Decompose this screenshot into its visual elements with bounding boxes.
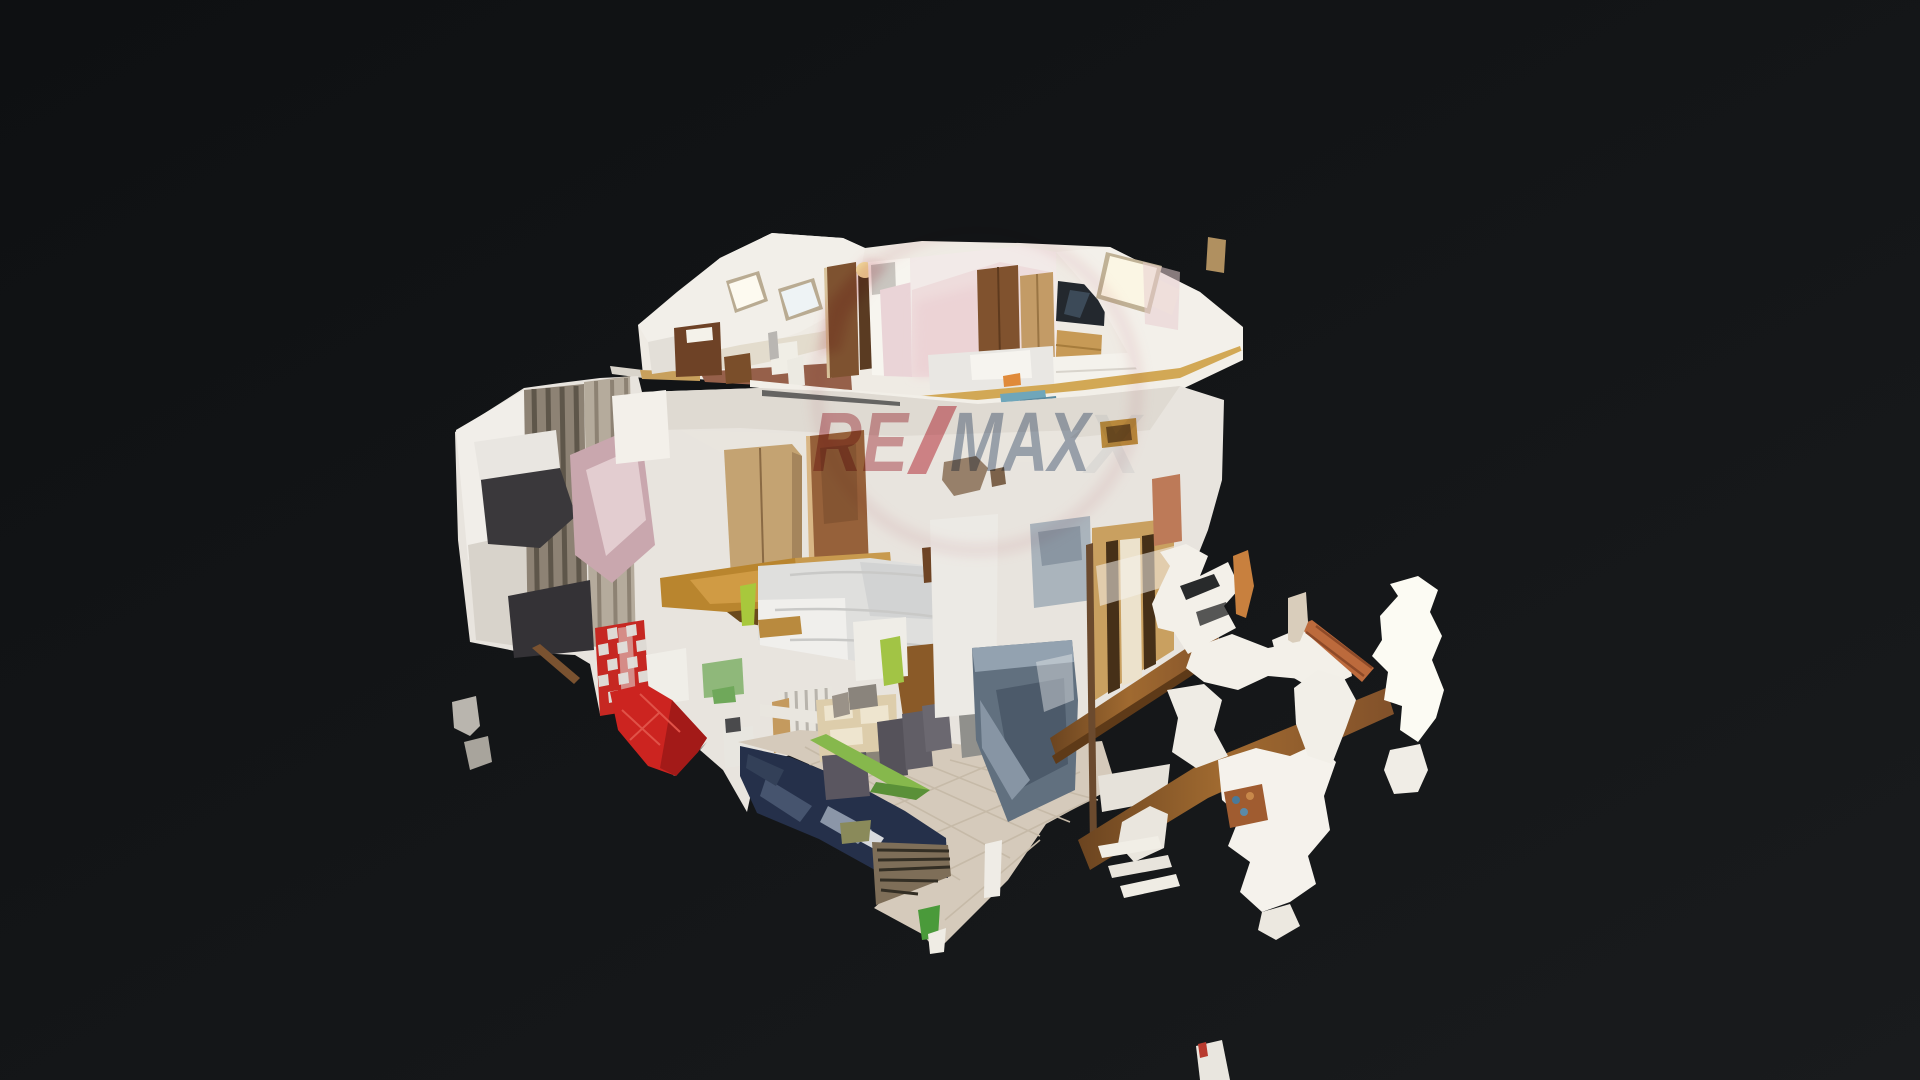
svg-text:X: X <box>1082 397 1145 491</box>
svg-text:MAX: MAX <box>950 395 1094 489</box>
svg-text:RE: RE <box>812 395 910 489</box>
